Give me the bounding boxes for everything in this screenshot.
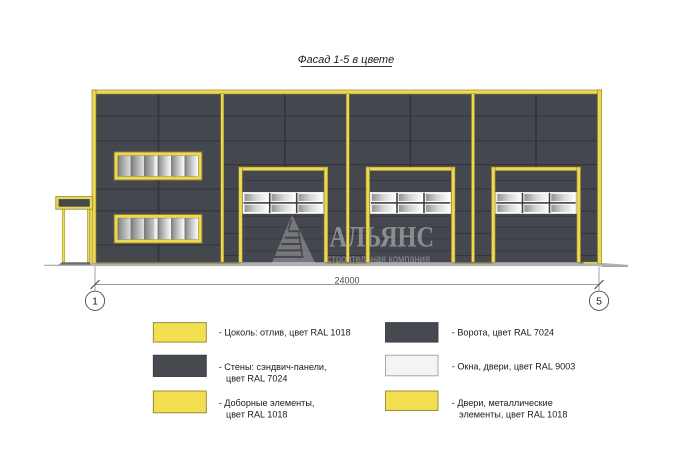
- svg-text:24000: 24000: [334, 275, 359, 285]
- svg-text:цвет RAL 1018: цвет RAL 1018: [226, 410, 288, 420]
- svg-text:- Окна, двери, цвет RAL 9003: - Окна, двери, цвет RAL 9003: [452, 361, 576, 371]
- svg-text:Фасад 1-5 в цвете: Фасад 1-5 в цвете: [298, 54, 394, 66]
- svg-text:- Доборные элементы,: - Доборные элементы,: [219, 398, 315, 408]
- svg-text:- Стены: сэндвич-панели,: - Стены: сэндвич-панели,: [219, 362, 327, 372]
- svg-text:1: 1: [92, 296, 98, 308]
- svg-text:АЛЬЯНС: АЛЬЯНС: [330, 221, 435, 254]
- svg-text:5: 5: [596, 296, 602, 308]
- svg-text:цвет RAL 7024: цвет RAL 7024: [226, 374, 288, 384]
- svg-text:элементы, цвет RAL 1018: элементы, цвет RAL 1018: [459, 410, 567, 420]
- svg-text:- Ворота, цвет RAL 7024: - Ворота, цвет RAL 7024: [452, 327, 554, 337]
- svg-text:- Цоколь: отлив, цвет RAL 1018: - Цоколь: отлив, цвет RAL 1018: [219, 327, 351, 337]
- svg-text:- Двери, металлические: - Двери, металлические: [452, 398, 553, 408]
